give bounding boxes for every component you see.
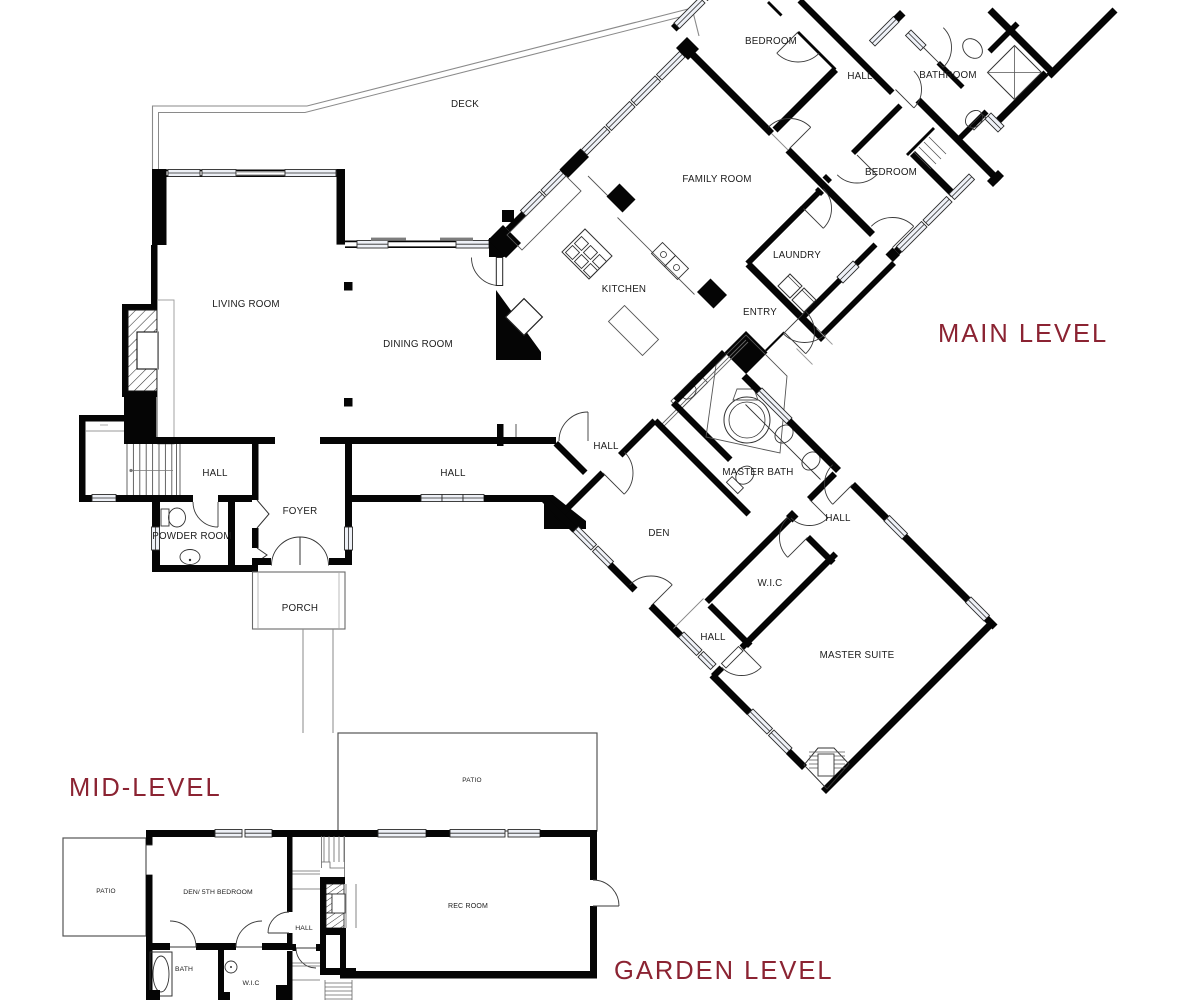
svg-text:HALL: HALL [825,513,851,524]
svg-text:GARDEN LEVEL: GARDEN LEVEL [614,957,834,985]
svg-text:DEN/ 5TH BEDROOM: DEN/ 5TH BEDROOM [183,889,253,896]
svg-text:HALL: HALL [593,441,619,452]
svg-text:BEDROOM: BEDROOM [745,36,797,47]
svg-text:DINING ROOM: DINING ROOM [383,339,453,350]
svg-text:ENTRY: ENTRY [743,307,777,318]
svg-text:MASTER SUITE: MASTER SUITE [820,650,895,661]
svg-text:HALL: HALL [202,468,228,479]
svg-text:HALL: HALL [440,468,466,479]
svg-text:LAUNDRY: LAUNDRY [773,250,821,261]
svg-text:POWDER ROOM: POWDER ROOM [152,531,231,542]
svg-text:DECK: DECK [451,99,479,110]
svg-text:FOYER: FOYER [283,506,318,517]
svg-text:LIVING ROOM: LIVING ROOM [212,299,280,310]
svg-text:PATIO: PATIO [96,888,116,895]
svg-text:BEDROOM: BEDROOM [865,167,917,178]
svg-text:MID-LEVEL: MID-LEVEL [69,774,222,802]
svg-text:MASTER BATH: MASTER BATH [722,467,793,478]
svg-text:PATIO: PATIO [462,777,482,784]
svg-text:W.I.C: W.I.C [758,578,783,589]
svg-text:W.I.C: W.I.C [242,980,259,987]
svg-text:BATHROOM: BATHROOM [919,70,976,81]
svg-text:PORCH: PORCH [282,603,318,614]
svg-text:REC ROOM: REC ROOM [448,903,488,910]
svg-text:KITCHEN: KITCHEN [602,284,646,295]
svg-text:HALL: HALL [847,71,873,82]
svg-text:FAMILY ROOM: FAMILY ROOM [682,174,751,185]
svg-text:MAIN LEVEL: MAIN LEVEL [938,320,1108,348]
svg-text:BATH: BATH [175,966,193,973]
svg-text:HALL: HALL [295,925,313,932]
svg-text:HALL: HALL [700,632,726,643]
svg-text:DEN: DEN [648,528,669,539]
